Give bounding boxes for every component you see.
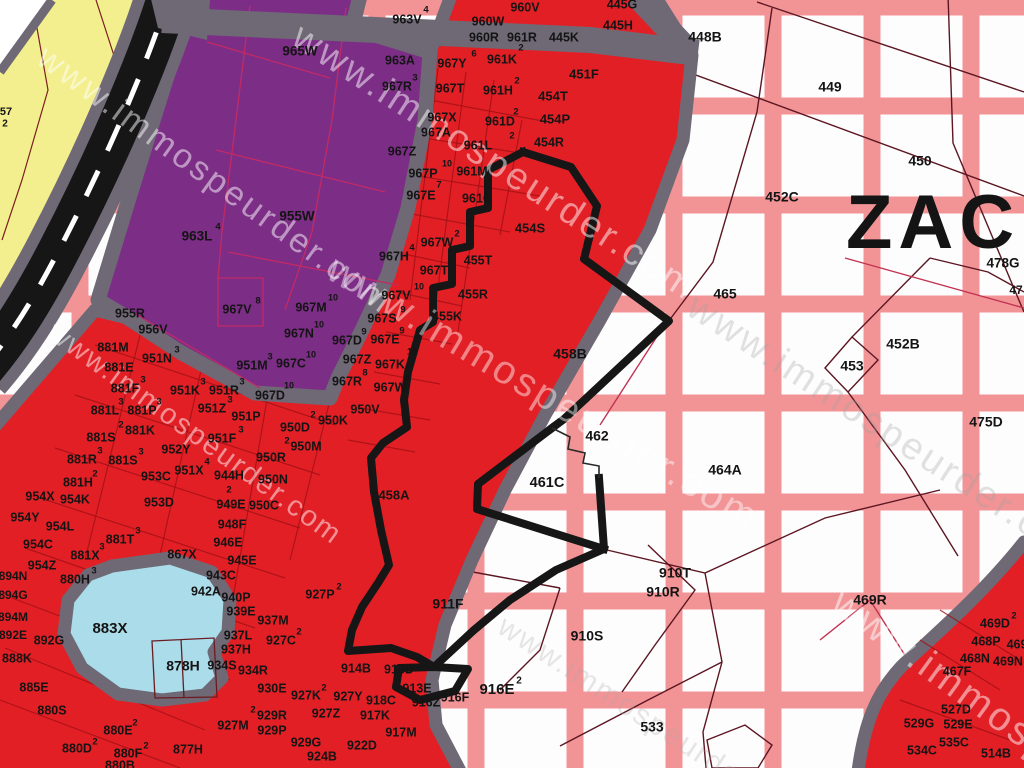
parcel-label: 951N	[142, 351, 172, 365]
parcel-label: 950R	[256, 450, 286, 464]
parcel-label: 951X	[174, 463, 204, 477]
parcel-label: 4	[423, 5, 429, 16]
parcel-label: 946E	[213, 535, 242, 549]
parcel-label: 916Z	[412, 695, 441, 709]
parcel-label: 455T	[464, 253, 493, 267]
parcel-label: 967K	[375, 357, 405, 371]
parcel-label: 2	[336, 582, 341, 593]
parcel-label: 951R	[209, 383, 239, 397]
parcel-label: 2	[296, 627, 301, 638]
parcel-label: 967H	[379, 249, 409, 263]
parcel-label: 3	[200, 377, 205, 388]
parcel-label: 4	[215, 222, 221, 233]
parcel-label: 924B	[307, 749, 337, 763]
parcel-label: 3	[135, 526, 140, 537]
parcel-label: 2	[226, 485, 231, 496]
parcel-label: 953C	[141, 469, 171, 483]
parcel-label: 514B	[981, 746, 1011, 760]
parcel-label: 464A	[708, 462, 741, 478]
parcel-label: 455R	[458, 287, 488, 301]
parcel-label: 8	[447, 256, 452, 267]
parcel-label: 939E	[226, 604, 255, 618]
parcel-label: 954K	[60, 492, 90, 506]
parcel-label: 2	[518, 43, 523, 54]
parcel-label: 8	[362, 368, 367, 379]
parcel-label: 967W	[421, 235, 454, 249]
parcel-label: 458A	[378, 487, 410, 502]
parcel-label: 2	[1011, 611, 1016, 622]
parcel-label: 967W	[374, 380, 407, 394]
parcel-label: 2	[321, 683, 326, 694]
parcel-label: 881S	[108, 453, 137, 467]
parcel-label: 2	[284, 436, 289, 447]
parcel-label: 951P	[231, 409, 260, 423]
parcel-label: 449	[818, 79, 842, 95]
parcel-label: 2	[132, 718, 137, 729]
parcel-label: 7	[436, 180, 441, 191]
parcel-label: 930E	[257, 681, 286, 695]
parcel-label: 943C	[206, 568, 236, 582]
parcel-label: 3	[91, 566, 96, 577]
parcel-label: 455K	[432, 309, 462, 323]
parcel-label: 2	[310, 410, 315, 421]
parcel-label: 3	[156, 397, 161, 408]
parcel-label: 967V	[381, 288, 411, 302]
parcel-label: 881K	[125, 423, 155, 437]
parcel-label: 963V	[392, 12, 422, 26]
parcel-label: 950D	[280, 420, 310, 434]
parcel-label: 534C	[907, 743, 937, 757]
parcel-label: 448B	[688, 29, 721, 45]
parcel-label: 967D	[255, 388, 285, 402]
parcel-label: 954X	[25, 489, 55, 503]
parcel-label: 961L	[464, 138, 493, 152]
parcel-label: 6	[471, 49, 476, 60]
parcel-label: 910S	[571, 628, 604, 644]
parcel-label: 881X	[70, 548, 100, 562]
parcel-label: 881E	[104, 360, 133, 374]
parcel-label: 892E	[0, 628, 27, 642]
parcel-label: 461C	[530, 475, 565, 491]
parcel-label: 885E	[19, 680, 48, 694]
parcel-label: 955W	[279, 209, 315, 224]
parcel-label: 2	[92, 469, 97, 480]
parcel-label: 529E	[943, 717, 972, 731]
parcel-label: 961K	[487, 52, 517, 66]
parcel-label: 2	[513, 107, 518, 118]
parcel-label: 910R	[646, 584, 679, 600]
parcel-label: 450	[908, 153, 932, 169]
parcel-label: 458B	[553, 346, 586, 362]
parcel-label: 894G	[0, 588, 28, 602]
parcel-label: 929R	[257, 708, 287, 722]
parcel-label: 954Z	[28, 558, 57, 572]
parcel-label: 922D	[347, 738, 377, 752]
parcel-label: 967C	[276, 356, 306, 370]
parcel-label: 3	[238, 425, 243, 436]
parcel-label: 937L	[224, 628, 253, 642]
parcel-label: 967S	[367, 311, 396, 325]
parcel-label: 927P	[305, 587, 334, 601]
parcel-label: 3	[412, 73, 417, 84]
parcel-label: 881S	[86, 430, 115, 444]
parcel-label: 967M	[295, 300, 326, 314]
parcel-label: 527D	[941, 702, 971, 716]
parcel-label: 927K	[291, 688, 321, 702]
parcel-label: 4	[204, 457, 210, 468]
zone-label-zac: ZAC	[846, 180, 1020, 265]
cadastral-map: ZACwww.immospeurder.comwww.immospeurder.…	[0, 0, 1024, 768]
parcel-label: 454S	[515, 220, 546, 235]
parcel-label: 881M	[97, 340, 128, 354]
parcel-label: 948F	[218, 517, 247, 531]
parcel-label: 445K	[549, 30, 579, 44]
parcel-label: 916E	[479, 681, 514, 698]
parcel-label: 927Z	[312, 706, 341, 720]
parcel-label: 3	[239, 377, 244, 388]
parcel-label: 913E	[402, 681, 431, 695]
parcel-label: 883X	[92, 620, 127, 637]
parcel-label: 934R	[238, 663, 268, 677]
parcel-label: 3	[174, 345, 179, 356]
parcel-label: 914B	[341, 661, 371, 675]
parcel-label: 950N	[258, 472, 288, 486]
parcel-label: 942A	[191, 584, 221, 598]
parcel-label: 3	[138, 447, 143, 458]
parcel-label: 880S	[37, 703, 66, 717]
parcel-label: 913D	[384, 662, 414, 676]
parcel-label: 469N	[993, 654, 1023, 668]
parcel-label: 967Z	[343, 352, 372, 366]
parcel-label: 3	[97, 446, 102, 457]
parcel-label: 952Y	[161, 442, 191, 456]
parcel-label: 967V	[222, 302, 252, 316]
parcel-label: 57	[0, 106, 12, 118]
parcel-label: 910T	[659, 565, 691, 581]
parcel-label: 894M	[0, 610, 28, 624]
parcel-label: 535C	[939, 735, 969, 749]
parcel-label: 950K	[318, 413, 348, 427]
parcel-label: 10	[442, 158, 452, 168]
parcel-label: 880D	[62, 741, 92, 755]
parcel-label: 954L	[46, 519, 75, 533]
parcel-label: 3	[118, 397, 123, 408]
parcel-label: 2	[509, 131, 514, 142]
parcel-label: 944H	[214, 468, 244, 482]
parcel-label: 880B	[105, 758, 135, 768]
parcel-label: 469D	[980, 616, 1010, 630]
parcel-label: 951F	[208, 431, 237, 445]
parcel-label: 967Y	[437, 56, 467, 70]
parcel-label: 478G	[986, 256, 1019, 271]
parcel-label: 2	[2, 119, 8, 130]
parcel-label: 10	[314, 319, 324, 329]
parcel-label: 934S	[207, 658, 236, 672]
parcel-label: 454T	[538, 88, 568, 103]
parcel-label: 961M	[456, 164, 487, 178]
parcel-label: 967E	[370, 332, 399, 346]
parcel-label: 881L	[91, 403, 120, 417]
parcel-label: 8	[255, 296, 260, 307]
parcel-label: 894N	[0, 569, 27, 583]
parcel-label: 950V	[350, 402, 380, 416]
parcel-label: 465	[713, 286, 737, 302]
parcel-label: 967A	[421, 125, 451, 139]
parcel-label: 967R	[382, 79, 412, 93]
parcel-label: 963L	[182, 229, 213, 244]
parcel-label: 965W	[282, 44, 318, 59]
parcel-label: 951K	[170, 383, 200, 397]
parcel-label: 967T	[420, 263, 449, 277]
parcel-label: 3	[267, 352, 272, 363]
parcel-label: 940P	[221, 590, 250, 604]
parcel-label: 960V	[510, 0, 540, 14]
parcel-label: 469	[1007, 637, 1024, 651]
parcel-label: 960W	[472, 14, 505, 28]
parcel-label: 961H	[483, 83, 513, 97]
parcel-label: 2	[405, 374, 410, 385]
parcel-label: 927C	[266, 633, 296, 647]
parcel-label: 967D	[332, 333, 362, 347]
parcel-label: 468N	[960, 651, 990, 665]
parcel-label: 880E	[103, 723, 132, 737]
parcel-label: 452B	[886, 336, 919, 352]
parcel-label: 878H	[166, 658, 199, 674]
parcel-label: 529G	[904, 716, 935, 730]
parcel-label: 950C	[249, 498, 279, 512]
parcel-label: 3	[227, 395, 232, 406]
parcel-label: 960R	[469, 30, 499, 44]
parcel-label: 2	[454, 229, 459, 240]
parcel-label: 961D	[485, 114, 515, 128]
parcel-label: 953D	[144, 495, 174, 509]
parcel-label: 9	[399, 326, 404, 337]
parcel-label: 956V	[138, 322, 168, 336]
parcel-label: 967N	[284, 326, 314, 340]
parcel-label: 467F	[943, 664, 972, 678]
parcel-label: 892G	[34, 633, 65, 647]
parcel-label: 10	[407, 346, 417, 356]
parcel-label: 955R	[115, 306, 145, 320]
parcel-label: 468P	[971, 634, 1000, 648]
parcel-label: 2	[92, 737, 97, 748]
parcel-label: 951Z	[198, 401, 227, 415]
parcel-label: 937H	[221, 642, 251, 656]
parcel-label: 967P	[408, 166, 437, 180]
parcel-label: 954C	[23, 537, 53, 551]
parcel-label: 462	[585, 428, 609, 444]
parcel-label: 475D	[969, 414, 1002, 430]
parcel-label: 451F	[569, 66, 599, 81]
parcel-label: 967X	[427, 110, 457, 124]
parcel-label: 911F	[432, 596, 464, 612]
parcel-label: 4	[409, 243, 415, 254]
parcel-label: 10	[328, 292, 338, 302]
parcel-label: 880H	[60, 572, 90, 586]
parcel-label: 917K	[360, 708, 390, 722]
parcel-label: 963A	[385, 53, 415, 67]
parcel-label: 949E	[216, 497, 245, 511]
parcel-label: 2	[250, 705, 255, 716]
parcel-label: 3	[140, 375, 145, 386]
parcel-label: 533	[640, 719, 664, 735]
parcel-label: 917M	[385, 725, 416, 739]
parcel-label: 9	[400, 305, 405, 316]
parcel-label: 454R	[534, 135, 564, 149]
parcel-label: 445G	[607, 0, 638, 11]
parcel-label: 967Z	[388, 144, 417, 158]
map-image: ZACwww.immospeurder.comwww.immospeurder.…	[0, 0, 1024, 768]
parcel-label: 916F	[441, 690, 470, 704]
parcel-label: 881T	[106, 532, 135, 546]
parcel-label: 881F	[111, 381, 140, 395]
parcel-label: 2	[118, 420, 123, 431]
parcel-label: 469R	[853, 592, 886, 608]
parcel-label: 10	[306, 349, 316, 359]
parcel-label: 2	[514, 76, 519, 87]
parcel-label: 967R	[332, 374, 362, 388]
parcel-label: 3	[99, 542, 104, 553]
parcel-label: 867X	[167, 547, 197, 561]
parcel-label: 47	[1009, 283, 1023, 297]
parcel-label: 2	[143, 741, 148, 752]
parcel-label: 454P	[540, 111, 571, 126]
parcel-label: 10	[284, 380, 294, 390]
parcel-label: 2	[516, 676, 522, 687]
parcel-label: 967T	[436, 81, 465, 95]
parcel-label: 937M	[257, 613, 288, 627]
parcel-label: 9	[361, 327, 366, 338]
parcel-label: 945E	[227, 553, 256, 567]
parcel-label: 452C	[765, 189, 798, 205]
parcel-label: 950M	[290, 439, 321, 453]
parcel-label: 967E	[406, 188, 435, 202]
parcel-label: 927M	[217, 718, 248, 732]
parcel-label: 961C	[462, 191, 492, 205]
parcel-label: 951M	[236, 358, 267, 372]
parcel-label: 918C	[366, 693, 396, 707]
parcel-label: 881R	[67, 452, 97, 466]
parcel-label: 453	[840, 358, 864, 374]
parcel-label: 445H	[603, 18, 633, 32]
parcel-label: 927Y	[333, 689, 363, 703]
parcel-label: 10	[414, 281, 424, 291]
parcel-label: 929G	[291, 735, 322, 749]
parcel-label: 888K	[2, 651, 32, 665]
parcel-label: 881H	[63, 475, 93, 489]
parcel-label: 881P	[127, 403, 156, 417]
parcel-label: 877H	[173, 742, 203, 756]
parcel-label: 929P	[257, 723, 286, 737]
parcel-label: 954Y	[10, 510, 40, 524]
